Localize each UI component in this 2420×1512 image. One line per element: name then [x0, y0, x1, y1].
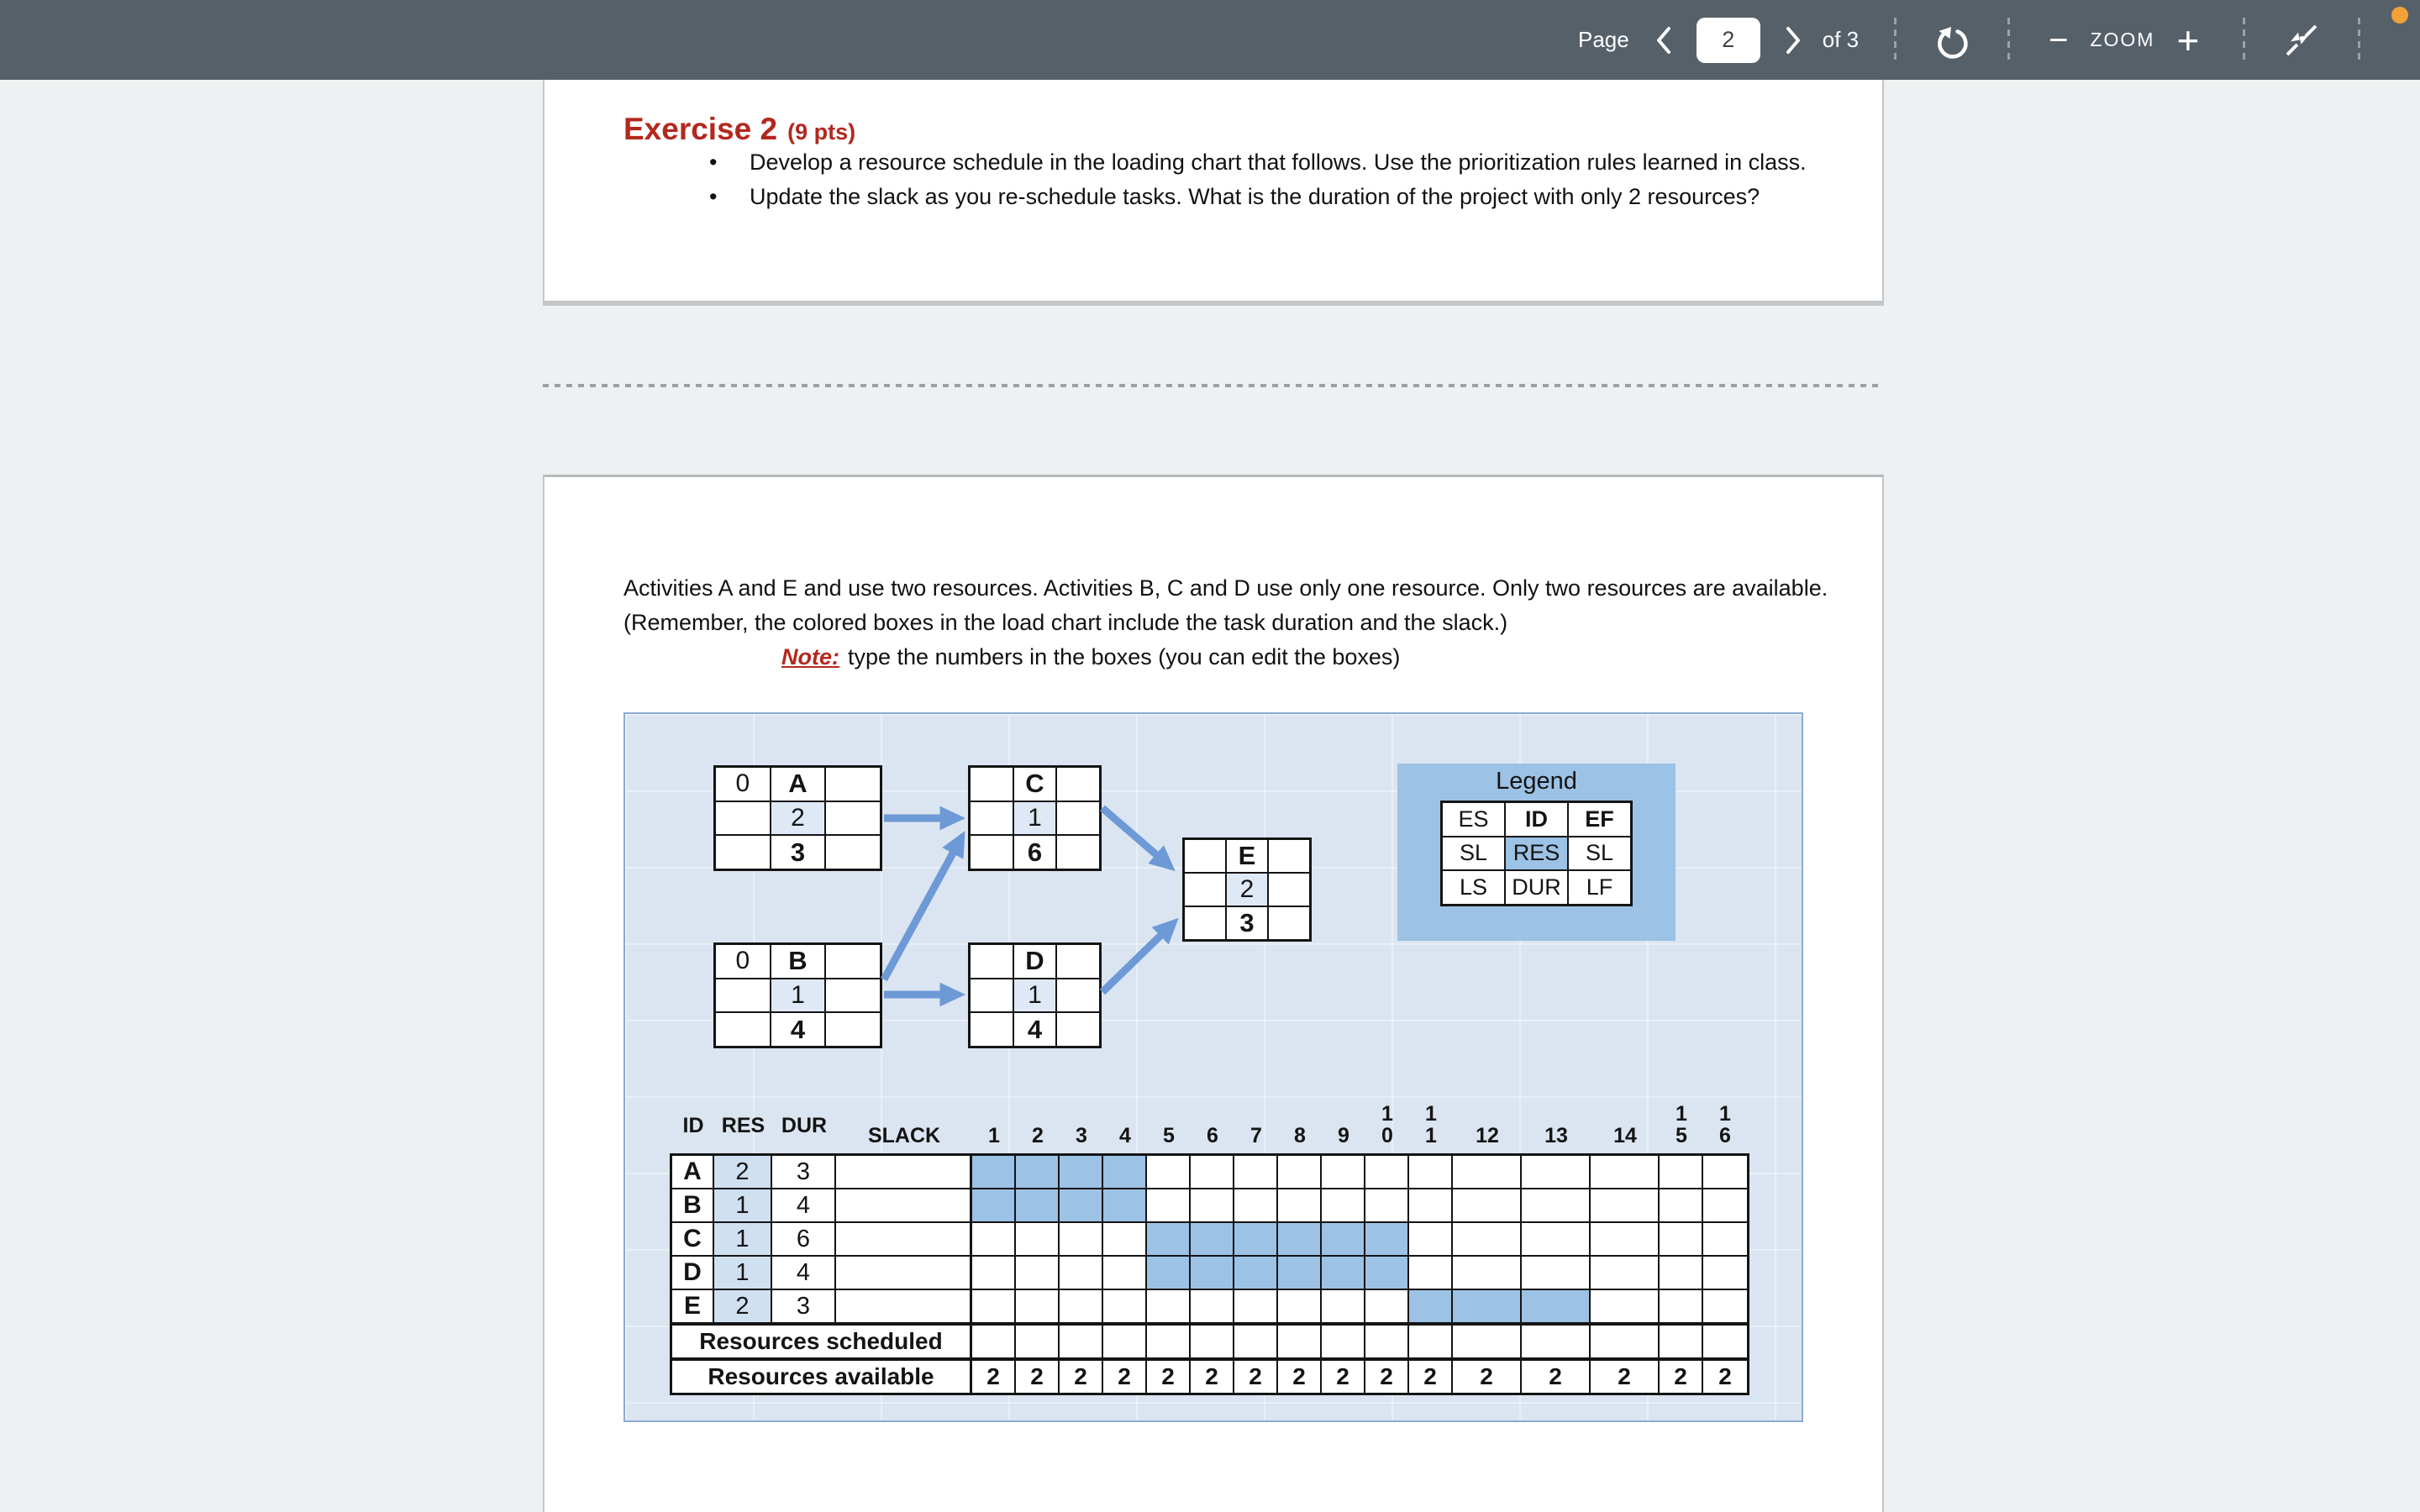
chart-period-header: 8: [1278, 1125, 1322, 1151]
node-A-cell[interactable]: [716, 836, 770, 869]
chart-period-cell[interactable]: [1191, 1223, 1234, 1257]
chart-slack-cell[interactable]: [836, 1290, 972, 1324]
node-C-cell[interactable]: [971, 836, 1013, 869]
legend-cell: RES: [1506, 837, 1567, 870]
legend-panel: Legend ESIDEFSLRESSLLSDURLF: [1397, 764, 1676, 941]
chart-period-cell[interactable]: 2: [1453, 1359, 1522, 1393]
activity-node-E: E23: [1182, 837, 1312, 942]
chart-period-cell[interactable]: [1147, 1189, 1191, 1223]
chart-activity-row: E23: [672, 1290, 1747, 1324]
chart-column-header: SLACK: [836, 1125, 972, 1151]
chart-period-header: 11: [1409, 1103, 1453, 1151]
chart-period-cell[interactable]: [1191, 1257, 1234, 1290]
node-D-cell[interactable]: 4: [1014, 1013, 1056, 1046]
toolbar-divider: [1894, 18, 1897, 63]
node-D-cell[interactable]: [971, 945, 1013, 978]
chart-period-cell[interactable]: [1522, 1324, 1591, 1359]
node-A-cell[interactable]: 2: [771, 802, 825, 835]
chart-period-cell[interactable]: [1234, 1324, 1278, 1359]
rotate-icon: [1932, 20, 1972, 60]
bullet-item: • Develop a resource schedule in the loa…: [704, 145, 1807, 180]
node-E-cell[interactable]: 2: [1227, 874, 1267, 906]
page-count-label: of 3: [1823, 27, 1859, 53]
chart-period-cell[interactable]: [1522, 1257, 1591, 1290]
chart-dur-cell[interactable]: 3: [772, 1290, 836, 1324]
chart-column-header: DUR: [772, 1115, 836, 1151]
next-page-button[interactable]: [1781, 22, 1806, 59]
chart-period-cell[interactable]: 2: [1522, 1359, 1591, 1393]
chart-period-cell[interactable]: [1016, 1156, 1060, 1189]
arrow-D-to-E: [1102, 933, 1163, 992]
node-C-cell[interactable]: [1057, 836, 1099, 869]
chart-period-cell[interactable]: [1103, 1223, 1147, 1257]
exercise-bullets: • Develop a resource schedule in the loa…: [704, 145, 1807, 214]
chart-period-cell[interactable]: [972, 1257, 1016, 1290]
chart-period-cell[interactable]: [1703, 1223, 1747, 1257]
node-C-cell[interactable]: C: [1014, 768, 1056, 801]
node-B-cell[interactable]: [826, 945, 880, 978]
toolbar-divider: [2007, 18, 2010, 63]
legend-table: ESIDEFSLRESSLLSDURLF: [1440, 801, 1633, 906]
node-E-cell[interactable]: E: [1227, 840, 1267, 872]
chart-res-cell[interactable]: 2: [714, 1156, 772, 1189]
chart-period-cell[interactable]: [1591, 1257, 1660, 1290]
chart-period-header: 14: [1591, 1125, 1660, 1151]
node-A-cell[interactable]: 0: [716, 768, 770, 801]
chart-available-row: Resources available2222222222222222: [672, 1359, 1747, 1393]
chart-period-cell[interactable]: [1409, 1223, 1453, 1257]
chart-period-cell[interactable]: [1322, 1156, 1365, 1189]
chart-period-cell[interactable]: [972, 1156, 1016, 1189]
node-D-cell[interactable]: [1057, 945, 1099, 978]
note-text: type the numbers in the boxes (you can e…: [848, 644, 1400, 669]
chart-res-cell[interactable]: 1: [714, 1223, 772, 1257]
chart-period-cell[interactable]: 2: [1191, 1359, 1234, 1393]
chart-period-cell[interactable]: [1322, 1257, 1365, 1290]
node-B-cell[interactable]: 4: [771, 1013, 825, 1046]
bullet-text: Develop a resource schedule in the loadi…: [750, 145, 1807, 180]
collapse-icon: [2282, 21, 2321, 60]
chart-period-cell[interactable]: 2: [1365, 1359, 1409, 1393]
node-C-cell[interactable]: 6: [1014, 836, 1056, 869]
pdf-toolbar: Page of 3 −: [0, 0, 2420, 80]
legend-cell: SL: [1443, 837, 1504, 870]
legend-cell: ES: [1443, 803, 1504, 836]
chart-period-header: 15: [1660, 1103, 1703, 1151]
chart-activity-row: B14: [672, 1189, 1747, 1223]
chart-period-cell[interactable]: [1365, 1189, 1409, 1223]
bullet-icon: •: [704, 145, 750, 180]
chart-row-label: Resources available: [672, 1359, 972, 1393]
diagram-canvas: 0A23 0B14 C16 D14 E23 Legend: [623, 712, 1803, 1422]
chart-period-cell[interactable]: [972, 1324, 1016, 1359]
chart-period-cell[interactable]: [1660, 1189, 1703, 1223]
exercise-title-text: Exercise 2: [623, 112, 777, 146]
chart-activity-row: D14: [672, 1257, 1747, 1290]
chart-period-cell[interactable]: [1703, 1156, 1747, 1189]
chart-period-cell[interactable]: [1060, 1223, 1103, 1257]
chart-period-cell[interactable]: 2: [1660, 1359, 1703, 1393]
chart-period-cell[interactable]: [1103, 1257, 1147, 1290]
chart-period-cell[interactable]: [1234, 1156, 1278, 1189]
document-page-main: Activities A and E and use two resources…: [543, 475, 1884, 1512]
node-C-cell[interactable]: [971, 768, 1013, 801]
chart-period-cell[interactable]: [1060, 1290, 1103, 1324]
node-A-cell[interactable]: [826, 802, 880, 835]
chart-period-cell[interactable]: [1278, 1189, 1322, 1223]
toolbar-divider: [2243, 18, 2245, 63]
chart-period-cell[interactable]: [1365, 1156, 1409, 1189]
chart-id-cell[interactable]: C: [672, 1223, 714, 1257]
chart-period-cell[interactable]: [1409, 1156, 1453, 1189]
document-page-top: Exercise 2(9 pts) • Develop a resource s…: [543, 80, 1884, 302]
node-B-cell[interactable]: 1: [771, 979, 825, 1012]
chart-period-cell[interactable]: 2: [1409, 1359, 1453, 1393]
chart-period-cell[interactable]: [1147, 1290, 1191, 1324]
chart-activity-row: A23: [672, 1156, 1747, 1189]
legend-cell: LS: [1443, 871, 1504, 904]
chart-period-cell[interactable]: [1409, 1324, 1453, 1359]
chart-period-cell[interactable]: [1060, 1156, 1103, 1189]
node-A-cell[interactable]: [826, 836, 880, 869]
chart-period-cell[interactable]: [1453, 1223, 1522, 1257]
chart-period-cell[interactable]: [1703, 1189, 1747, 1223]
chart-period-header: 10: [1365, 1103, 1409, 1151]
chart-period-cell[interactable]: [972, 1189, 1016, 1223]
chart-period-cell[interactable]: [1660, 1223, 1703, 1257]
chart-period-cell[interactable]: [972, 1290, 1016, 1324]
bullet-text: Update the slack as you re-schedule task…: [750, 180, 1760, 214]
legend-title: Legend: [1397, 768, 1676, 795]
chart-period-cell[interactable]: [1453, 1257, 1522, 1290]
notification-dot: [2391, 7, 2408, 24]
chart-period-cell[interactable]: [1278, 1290, 1322, 1324]
chart-period-cell[interactable]: [1147, 1257, 1191, 1290]
chart-period-header: 5: [1147, 1125, 1191, 1151]
chart-period-cell[interactable]: [1322, 1290, 1365, 1324]
chart-scheduled-row: Resources scheduled: [672, 1324, 1747, 1359]
chart-period-cell[interactable]: [1278, 1156, 1322, 1189]
chart-dur-cell[interactable]: 4: [772, 1189, 836, 1223]
bullet-item: • Update the slack as you re-schedule ta…: [704, 180, 1807, 214]
chart-period-cell[interactable]: [1591, 1324, 1660, 1359]
chart-period-cell[interactable]: [1016, 1189, 1060, 1223]
node-B-cell[interactable]: [826, 979, 880, 1012]
fit-to-screen-button[interactable]: [2282, 21, 2321, 60]
chart-period-cell[interactable]: [1522, 1189, 1591, 1223]
chart-period-cell[interactable]: [1522, 1290, 1591, 1324]
chart-period-cell[interactable]: [1191, 1189, 1234, 1223]
chart-period-header: 9: [1322, 1125, 1365, 1151]
chart-period-header: 6: [1191, 1125, 1234, 1151]
chart-period-cell[interactable]: [1147, 1223, 1191, 1257]
chart-period-cell[interactable]: 2: [1016, 1359, 1060, 1393]
chart-activity-row: C16: [672, 1223, 1747, 1257]
chart-id-cell[interactable]: D: [672, 1257, 714, 1290]
chart-period-cell[interactable]: [1660, 1156, 1703, 1189]
chart-period-cell[interactable]: [1278, 1223, 1322, 1257]
chart-period-cell[interactable]: [1409, 1189, 1453, 1223]
chart-period-cell[interactable]: [1703, 1257, 1747, 1290]
chart-period-cell[interactable]: [1365, 1290, 1409, 1324]
chevron-right-icon: [1781, 22, 1806, 59]
chart-period-cell[interactable]: 2: [1591, 1359, 1660, 1393]
chart-period-cell[interactable]: [1016, 1290, 1060, 1324]
node-E-cell[interactable]: [1269, 907, 1309, 939]
chart-period-header: 16: [1703, 1103, 1747, 1151]
chart-period-cell[interactable]: [1322, 1223, 1365, 1257]
chart-period-cell[interactable]: [1522, 1223, 1591, 1257]
chart-dur-cell[interactable]: 3: [772, 1156, 836, 1189]
node-A-cell[interactable]: [716, 802, 770, 835]
chart-period-cell[interactable]: 2: [1060, 1359, 1103, 1393]
chart-period-header: 12: [1453, 1125, 1522, 1151]
minus-icon: −: [2049, 24, 2068, 57]
chart-period-cell[interactable]: [1660, 1324, 1703, 1359]
instructions-line1: Activities A and E and use two resources…: [623, 571, 1828, 605]
node-A-cell[interactable]: A: [771, 768, 825, 801]
chart-period-cell[interactable]: [1234, 1223, 1278, 1257]
node-E-cell[interactable]: [1185, 907, 1225, 939]
chart-period-cell[interactable]: 2: [1234, 1359, 1278, 1393]
chart-period-cell[interactable]: [1234, 1290, 1278, 1324]
chart-dur-cell[interactable]: 6: [772, 1223, 836, 1257]
node-A-cell[interactable]: 3: [771, 836, 825, 869]
chart-id-cell[interactable]: B: [672, 1189, 714, 1223]
chart-period-cell[interactable]: [1147, 1156, 1191, 1189]
chart-period-cell[interactable]: [1016, 1324, 1060, 1359]
chart-period-cell[interactable]: [1409, 1290, 1453, 1324]
chart-id-cell[interactable]: E: [672, 1290, 714, 1324]
chart-period-cell[interactable]: [1060, 1257, 1103, 1290]
chart-period-cell[interactable]: [1103, 1324, 1147, 1359]
chart-period-cell[interactable]: [1703, 1290, 1747, 1324]
chart-period-header: 2: [1016, 1125, 1060, 1151]
chart-period-header: 3: [1060, 1125, 1103, 1151]
node-A-cell[interactable]: [826, 768, 880, 801]
chart-period-cell[interactable]: [1191, 1290, 1234, 1324]
chart-period-cell[interactable]: [1365, 1257, 1409, 1290]
chart-period-cell[interactable]: [1016, 1223, 1060, 1257]
chart-res-cell[interactable]: 2: [714, 1290, 772, 1324]
zoom-out-button[interactable]: −: [2049, 24, 2068, 57]
chart-period-cell[interactable]: 2: [972, 1359, 1016, 1393]
chart-period-cell[interactable]: [1591, 1290, 1660, 1324]
chevron-left-icon: [1651, 22, 1676, 59]
node-E-cell[interactable]: [1269, 874, 1309, 906]
chart-period-cell[interactable]: [1591, 1189, 1660, 1223]
exercise-title: Exercise 2(9 pts): [623, 112, 855, 147]
chart-period-cell[interactable]: [1278, 1257, 1322, 1290]
chart-column-header: RES: [714, 1115, 772, 1151]
chart-period-cell[interactable]: [1453, 1324, 1522, 1359]
node-B-cell[interactable]: B: [771, 945, 825, 978]
node-D-cell[interactable]: [1057, 1013, 1099, 1046]
activity-node-A: 0A23: [713, 765, 882, 871]
chart-column-header: ID: [672, 1115, 714, 1151]
legend-cell: ID: [1506, 803, 1567, 836]
chart-period-cell[interactable]: [1147, 1324, 1191, 1359]
chart-period-cell[interactable]: [1660, 1290, 1703, 1324]
page-number-input[interactable]: [1697, 18, 1760, 63]
rotate-button[interactable]: [1932, 20, 1972, 60]
node-B-cell[interactable]: [716, 979, 770, 1012]
previous-page-button[interactable]: [1651, 22, 1676, 59]
chart-id-cell[interactable]: A: [672, 1156, 714, 1189]
node-C-cell[interactable]: 1: [1014, 802, 1056, 835]
chart-slack-cell[interactable]: [836, 1257, 972, 1290]
chart-period-cell[interactable]: [1234, 1257, 1278, 1290]
load-chart-table: A23B14C16D14E23Resources scheduledResour…: [670, 1153, 1749, 1395]
chart-period-cell[interactable]: [1103, 1189, 1147, 1223]
chart-period-cell[interactable]: [1522, 1156, 1591, 1189]
node-C-cell[interactable]: [1057, 768, 1099, 801]
chart-period-header: 7: [1234, 1125, 1278, 1151]
node-E-cell[interactable]: 3: [1227, 907, 1267, 939]
chart-period-cell[interactable]: [1322, 1189, 1365, 1223]
chart-period-cell[interactable]: [1191, 1324, 1234, 1359]
chart-period-header: 13: [1522, 1125, 1591, 1151]
chart-period-cell[interactable]: 2: [1703, 1359, 1747, 1393]
node-D-cell[interactable]: D: [1014, 945, 1056, 978]
instructions-line2: (Remember, the colored boxes in the load…: [623, 606, 1507, 639]
node-C-cell[interactable]: [1057, 802, 1099, 835]
activity-node-D: D14: [968, 942, 1102, 1048]
node-D-cell[interactable]: 1: [1014, 979, 1056, 1012]
chart-period-cell[interactable]: [1703, 1324, 1747, 1359]
chart-period-cell[interactable]: [1660, 1257, 1703, 1290]
legend-cell: EF: [1569, 803, 1630, 836]
chart-period-cell[interactable]: [1409, 1257, 1453, 1290]
bullet-icon: •: [704, 180, 750, 214]
arrow-B-to-C: [884, 850, 955, 979]
chart-period-cell[interactable]: [1365, 1324, 1409, 1359]
node-E-cell[interactable]: [1269, 840, 1309, 872]
chart-period-cell[interactable]: [1365, 1223, 1409, 1257]
chart-period-cell[interactable]: [1016, 1257, 1060, 1290]
chart-period-cell[interactable]: [1234, 1189, 1278, 1223]
legend-cell: LF: [1569, 871, 1630, 904]
page-separator: [543, 384, 1881, 387]
node-D-cell[interactable]: [971, 979, 1013, 1012]
chart-period-cell[interactable]: [1322, 1324, 1365, 1359]
chart-period-cell[interactable]: [1060, 1324, 1103, 1359]
chart-res-cell[interactable]: 1: [714, 1257, 772, 1290]
chart-slack-cell[interactable]: [836, 1223, 972, 1257]
chart-slack-cell[interactable]: [836, 1189, 972, 1223]
toolbar-divider: [2358, 18, 2360, 63]
node-D-cell[interactable]: [1057, 979, 1099, 1012]
chart-dur-cell[interactable]: 4: [772, 1257, 836, 1290]
exercise-points: (9 pts): [787, 119, 855, 144]
chart-period-cell[interactable]: 2: [1103, 1359, 1147, 1393]
chart-period-cell[interactable]: [1103, 1156, 1147, 1189]
note-line: Note:type the numbers in the boxes (you …: [781, 640, 1400, 674]
node-E-cell[interactable]: [1185, 874, 1225, 906]
note-label: Note:: [781, 644, 839, 669]
pdf-viewer: Page of 3 −: [0, 0, 2420, 1512]
node-B-cell[interactable]: [826, 1013, 880, 1046]
node-C-cell[interactable]: [971, 802, 1013, 835]
zoom-label: ZOOM: [2090, 29, 2154, 51]
chart-period-cell[interactable]: 2: [1322, 1359, 1365, 1393]
node-B-cell[interactable]: 0: [716, 945, 770, 978]
chart-period-cell[interactable]: [1453, 1156, 1522, 1189]
chart-period-cell[interactable]: [972, 1223, 1016, 1257]
activity-node-B: 0B14: [713, 942, 882, 1048]
chart-period-cell[interactable]: [1453, 1290, 1522, 1324]
chart-period-cell[interactable]: [1591, 1223, 1660, 1257]
load-chart-header: IDRESDURSLACK12345678910111213141516: [672, 1090, 1747, 1151]
node-D-cell[interactable]: [971, 1013, 1013, 1046]
node-E-cell[interactable]: [1185, 840, 1225, 872]
chart-period-cell[interactable]: [1591, 1156, 1660, 1189]
zoom-in-button[interactable]: +: [2176, 21, 2199, 60]
chart-period-cell[interactable]: [1060, 1189, 1103, 1223]
node-B-cell[interactable]: [716, 1013, 770, 1046]
arrow-C-to-E: [1102, 808, 1159, 857]
chart-slack-cell[interactable]: [836, 1156, 972, 1189]
page-label: Page: [1578, 27, 1629, 53]
chart-period-cell[interactable]: [1191, 1156, 1234, 1189]
chart-period-cell[interactable]: [1453, 1189, 1522, 1223]
chart-period-header: 4: [1103, 1125, 1147, 1151]
chart-period-cell[interactable]: 2: [1278, 1359, 1322, 1393]
legend-cell: DUR: [1506, 871, 1567, 904]
chart-period-header: 1: [972, 1125, 1016, 1151]
plus-icon: +: [2176, 21, 2199, 60]
chart-res-cell[interactable]: 1: [714, 1189, 772, 1223]
chart-row-label: Resources scheduled: [672, 1324, 972, 1359]
activity-node-C: C16: [968, 765, 1102, 871]
chart-period-cell[interactable]: [1278, 1324, 1322, 1359]
chart-period-cell[interactable]: 2: [1147, 1359, 1191, 1393]
chart-period-cell[interactable]: [1103, 1290, 1147, 1324]
legend-cell: SL: [1569, 837, 1630, 870]
